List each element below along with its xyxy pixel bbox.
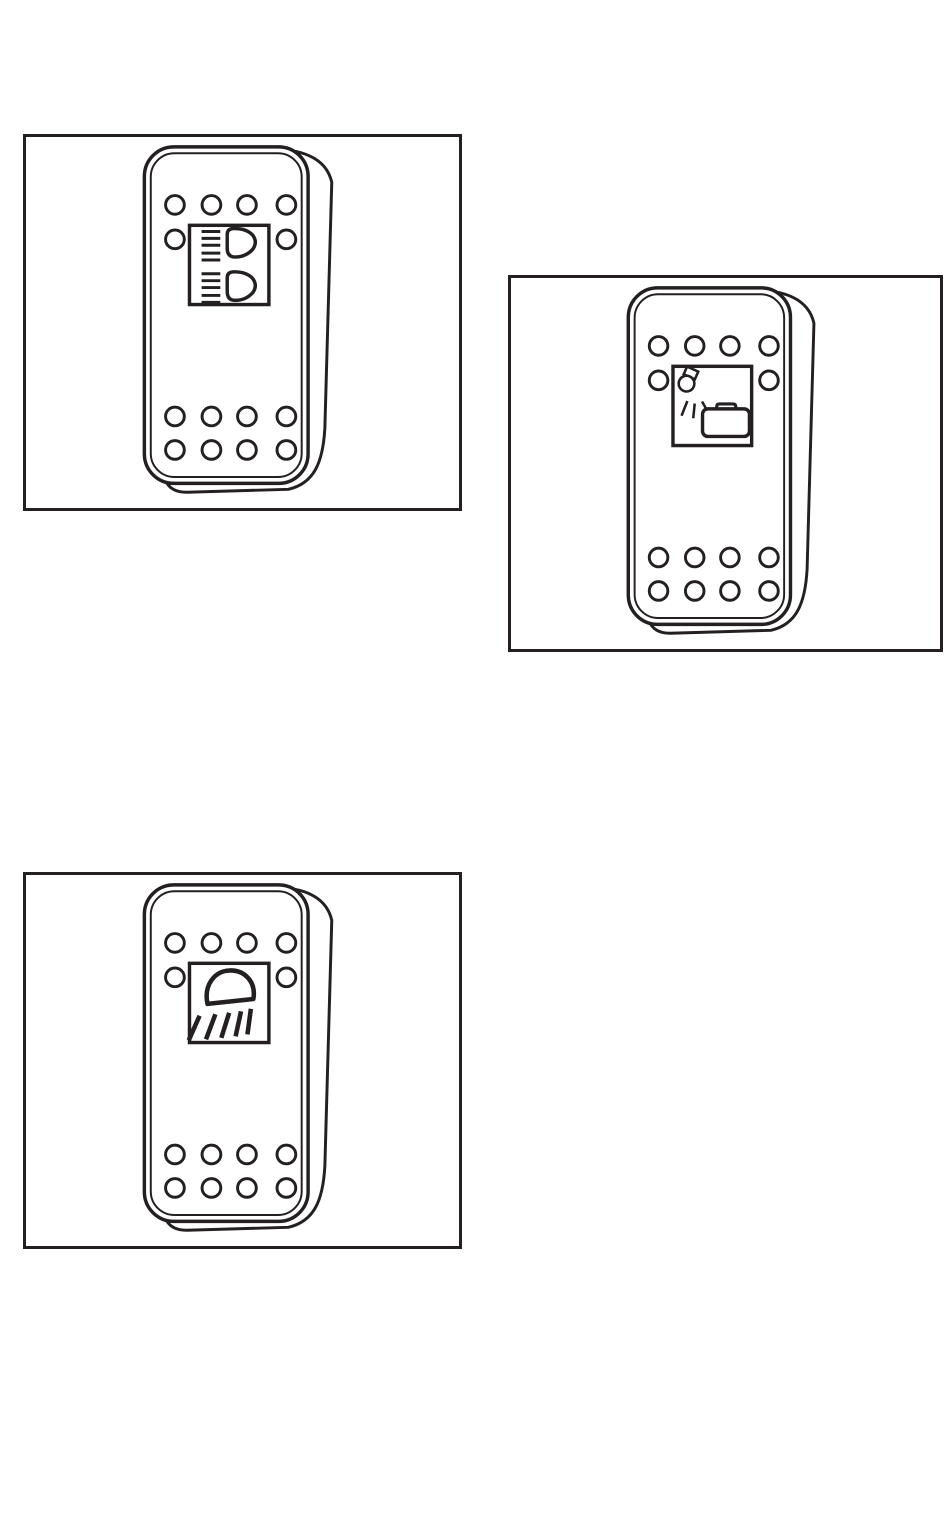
figure-work-lamp-switch [23,872,462,1249]
figure-cargo-lamp-switch [508,275,943,652]
manual-page [0,0,950,1514]
figure-headlight-beam-switch [23,134,462,511]
